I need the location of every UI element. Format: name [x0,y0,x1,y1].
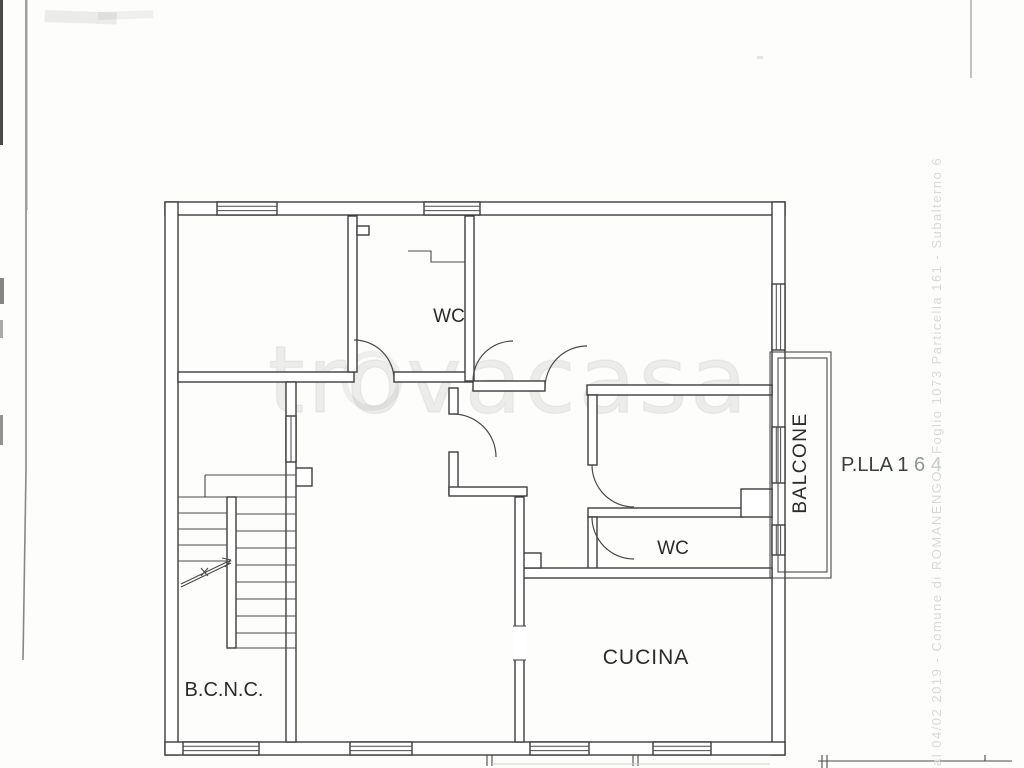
floorplan-canvas: trovacasa [0,0,1024,768]
page-edge-mark [0,320,3,338]
speck [757,56,763,59]
staircase [178,475,296,648]
wc-duct-wall [408,251,465,262]
parcel-number-mid: 6 [914,454,925,476]
cadastral-margin-note: al 04/02 2019 - Comune di ROMANENGO - Fo… [929,157,944,766]
room-label-wc-top: WC [433,306,465,327]
room-label-balcone: BALCONE [790,412,811,513]
room-label-bcnc: B.C.N.C. [185,679,264,701]
window [772,284,785,350]
window [183,742,259,755]
page-edge-mark [0,278,4,304]
window [350,742,412,755]
parcel-number: P.LLA 1 6 4 [841,454,942,476]
scanned-floorplan-page: trovacasa [0,0,1024,768]
window [530,742,589,755]
page-fold-line [23,0,26,660]
room-label-wc-lower: WC [657,538,689,559]
parcel-number-prefix: P.LLA 1 [841,454,908,476]
stair-direction-arrow-icon [181,558,231,587]
page-edge-mark [0,415,3,445]
window [217,202,277,215]
window [424,202,480,215]
door-arc [592,517,634,559]
windows [183,202,785,755]
page-edge-mark [0,0,3,145]
room-label-cucina: CUCINA [603,646,690,669]
smudge [98,10,153,20]
door-arc [592,465,634,507]
window [653,742,711,755]
outer-walls [165,202,785,755]
